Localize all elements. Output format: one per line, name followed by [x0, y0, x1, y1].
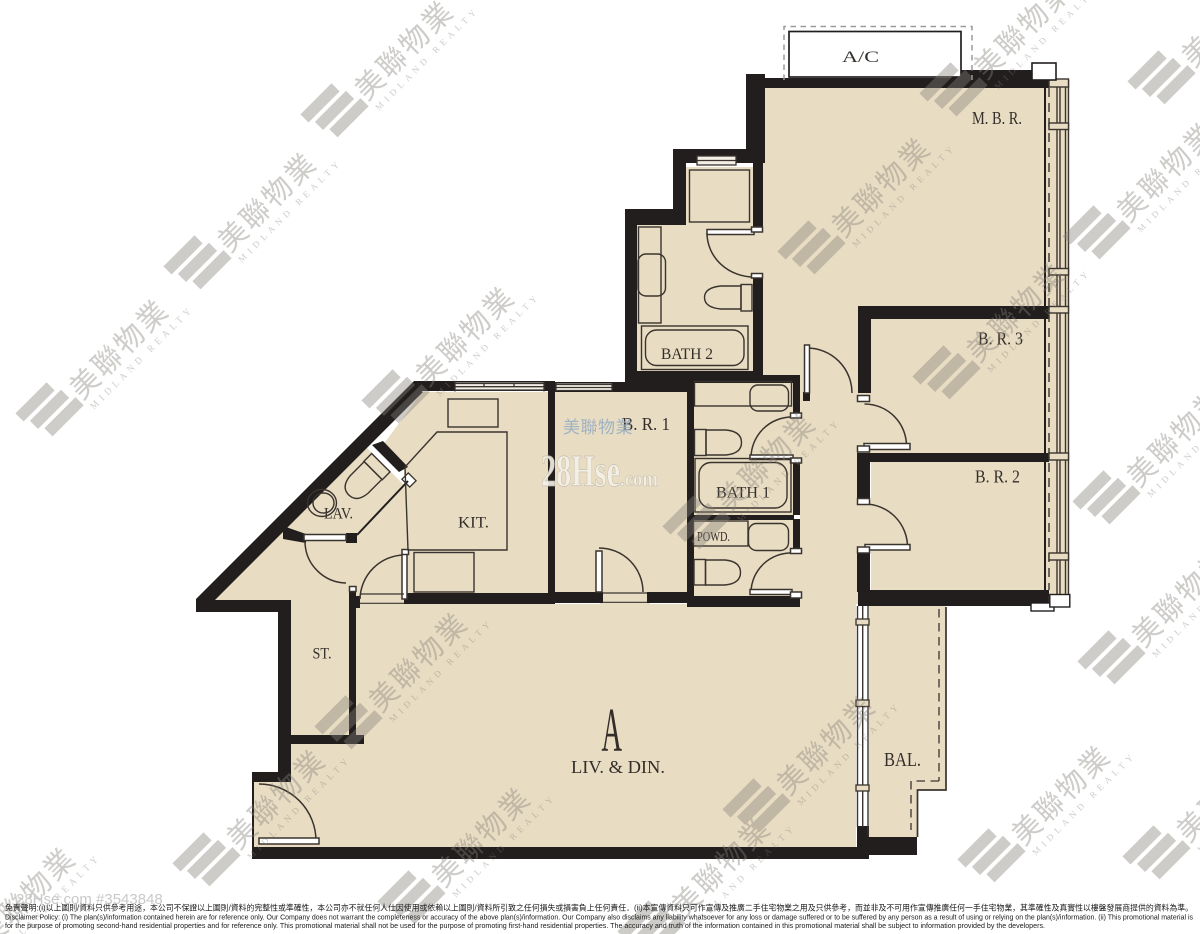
svg-text:M. B. R.: M. B. R.	[972, 108, 1022, 128]
svg-text:.com: .com	[620, 466, 658, 491]
svg-text:BAL.: BAL.	[884, 750, 921, 771]
svg-text:LAV.: LAV.	[324, 506, 353, 523]
svg-text:BATH 2: BATH 2	[661, 346, 713, 363]
svg-text:B. R. 2: B. R. 2	[975, 467, 1020, 487]
svg-text:A/C: A/C	[842, 49, 879, 66]
svg-text:美聯物業: 美聯物業	[563, 418, 633, 437]
svg-text:LIV. & DIN.: LIV. & DIN.	[571, 757, 665, 777]
svg-text:for the purpose of promoting s: for the purpose of promoting second-hand…	[5, 921, 1045, 930]
svg-text:28Hse: 28Hse	[541, 446, 620, 496]
svg-text:A: A	[602, 697, 623, 765]
svg-text:ST.: ST.	[313, 646, 332, 663]
svg-text:免責聲明:(i)以上圖則/資料只供參考用途，本公司不保證以上: 免責聲明:(i)以上圖則/資料只供參考用途，本公司不保證以上圖則/資料的完整性或…	[5, 903, 1193, 913]
svg-text:KIT.: KIT.	[458, 515, 489, 532]
